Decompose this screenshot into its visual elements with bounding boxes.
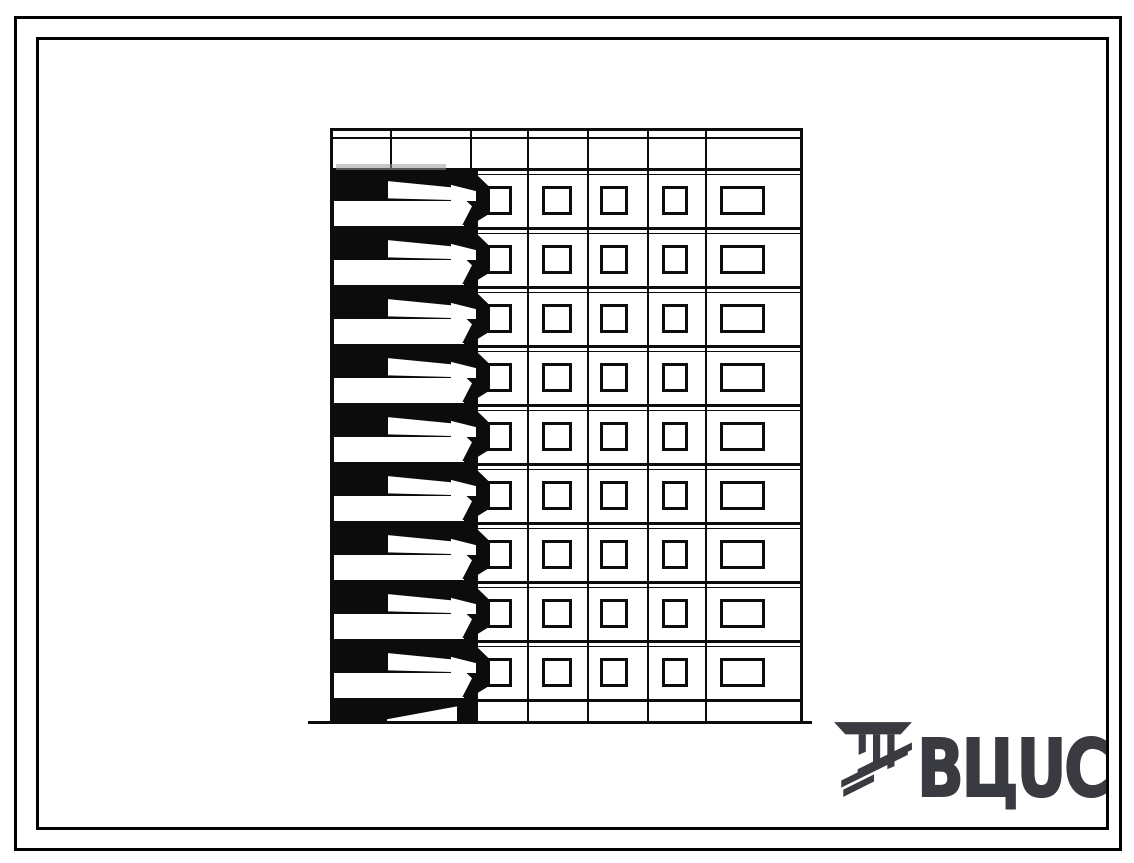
balcony-parapet-slab bbox=[334, 673, 472, 697]
window bbox=[542, 422, 572, 451]
window bbox=[720, 540, 765, 569]
vcis-columns-emblem-icon bbox=[831, 720, 915, 802]
floor-slab-thin-line bbox=[470, 410, 803, 411]
window bbox=[720, 363, 765, 392]
balcony-slab-highlight bbox=[334, 461, 464, 463]
window bbox=[720, 481, 765, 510]
parapet-second-line bbox=[330, 137, 803, 139]
scan-smudge bbox=[336, 164, 446, 170]
balcony-parapet-slab bbox=[334, 614, 472, 638]
building-left-edge bbox=[330, 128, 333, 724]
window bbox=[600, 304, 628, 333]
window bbox=[542, 599, 572, 628]
bay-line bbox=[647, 128, 649, 721]
balcony-slab-highlight bbox=[334, 638, 464, 640]
balcony-parapet-slab bbox=[334, 319, 472, 343]
window bbox=[662, 304, 688, 333]
balcony-parapet-slab bbox=[334, 437, 472, 461]
window bbox=[600, 599, 628, 628]
window bbox=[662, 481, 688, 510]
bay-line bbox=[587, 128, 589, 721]
window bbox=[600, 540, 628, 569]
floor-slab-thin-line bbox=[470, 233, 803, 234]
parapet-top-line bbox=[330, 128, 803, 131]
window bbox=[542, 540, 572, 569]
window bbox=[542, 481, 572, 510]
window bbox=[662, 363, 688, 392]
window bbox=[542, 363, 572, 392]
window bbox=[662, 186, 688, 215]
window bbox=[600, 422, 628, 451]
balcony-parapet-slab bbox=[334, 201, 472, 225]
building-elevation bbox=[330, 128, 803, 730]
floor-slab-thin-line bbox=[470, 587, 803, 588]
window bbox=[662, 658, 688, 687]
floor-slab-thin-line bbox=[470, 292, 803, 293]
balcony-parapet-slab bbox=[334, 260, 472, 284]
window bbox=[600, 186, 628, 215]
emblem-roof bbox=[834, 722, 912, 734]
emblem-column bbox=[873, 734, 880, 762]
window bbox=[720, 658, 765, 687]
balcony-slab-highlight bbox=[334, 520, 464, 522]
drawing-sheet: ВЦUС bbox=[0, 0, 1134, 863]
balcony-slab-highlight bbox=[334, 402, 464, 404]
bay-line bbox=[527, 128, 529, 721]
floor-slab-thin-line bbox=[470, 469, 803, 470]
floor-slab-thin-line bbox=[470, 646, 803, 647]
balcony-parapet-slab bbox=[334, 555, 472, 579]
floor-slab-thin-line bbox=[470, 174, 803, 175]
balcony-slab-highlight bbox=[334, 343, 464, 345]
vcis-logo: ВЦUС bbox=[831, 720, 1101, 810]
window bbox=[662, 540, 688, 569]
window bbox=[600, 481, 628, 510]
window bbox=[662, 245, 688, 274]
floor-slab-thin-line bbox=[470, 528, 803, 529]
logo-text: ВЦUС bbox=[917, 730, 1107, 809]
window bbox=[600, 658, 628, 687]
window bbox=[542, 245, 572, 274]
building-right-edge bbox=[800, 128, 804, 724]
window bbox=[542, 658, 572, 687]
balcony-parapet-slab bbox=[334, 496, 472, 520]
balcony-slab-highlight bbox=[334, 284, 464, 286]
window bbox=[600, 245, 628, 274]
window bbox=[542, 304, 572, 333]
balcony-parapet-slab bbox=[334, 378, 472, 402]
balcony-slab-highlight bbox=[334, 697, 464, 699]
window bbox=[720, 245, 765, 274]
window bbox=[720, 422, 765, 451]
window bbox=[662, 599, 688, 628]
ground-line bbox=[308, 721, 812, 724]
balcony-slab-highlight bbox=[334, 579, 464, 581]
balcony-slab-highlight bbox=[334, 225, 464, 227]
window bbox=[662, 422, 688, 451]
window bbox=[600, 363, 628, 392]
emblem-column bbox=[859, 734, 866, 754]
window bbox=[720, 186, 765, 215]
floor-slab-thin-line bbox=[470, 351, 803, 352]
window bbox=[720, 304, 765, 333]
window bbox=[542, 186, 572, 215]
window bbox=[720, 599, 765, 628]
bay-line bbox=[705, 128, 707, 721]
